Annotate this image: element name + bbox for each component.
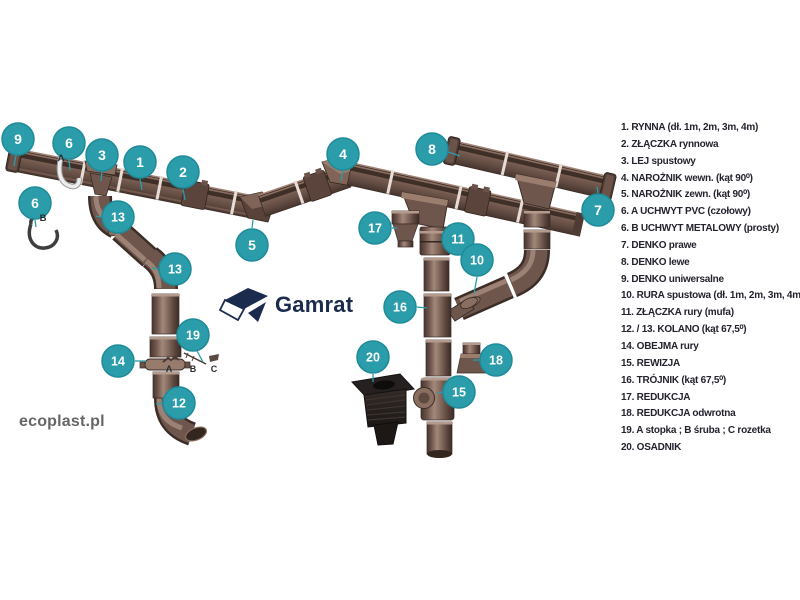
callout-badge-17: 17 (359, 212, 391, 244)
legend-item: 9. DENKO uniwersalne (621, 272, 800, 289)
callout-pointer-line (35, 220, 36, 227)
catalog-page: 96A312136B13548717111016191420121518ABC … (0, 0, 800, 600)
elbow-right (511, 250, 537, 285)
callout-number: 17 (368, 222, 382, 236)
legend-item: 17. REDUKCJA (621, 390, 800, 407)
part19-letter: A (166, 364, 173, 374)
downpipe-center (424, 258, 449, 291)
callout-number: 12 (172, 397, 186, 411)
callout-number: 9 (14, 131, 22, 147)
gamrat-logo-text: Gamrat (275, 292, 353, 318)
legend-item: 6. B UCHWYT METALOWY (prosty) (621, 221, 800, 238)
callout-badge-15: 15 (443, 376, 475, 408)
callout-badge-13: 13 (102, 201, 134, 233)
pipe-diagonal-left (116, 231, 150, 260)
legend: 1. RYNNA (dł. 1m, 2m, 3m, 4m)2. ZŁĄCZKA … (621, 120, 800, 457)
callout-badge-9: 9 (2, 123, 34, 155)
callout-number: 13 (111, 211, 125, 225)
callout-badge-3: 3 (86, 139, 118, 171)
callout-number: 18 (489, 354, 503, 368)
callout-number: 6 (65, 135, 73, 151)
callout-badge-1: 1 (124, 146, 156, 178)
callout-badge-16: 16 (384, 291, 416, 323)
legend-item: 12. / 13. KOLANO (kąt 67,5⁰) (621, 322, 800, 339)
callout-badge-13: 13 (159, 253, 191, 285)
callout-number: 4 (339, 146, 347, 162)
callout-number: 11 (451, 233, 464, 247)
callout-number: 14 (111, 355, 125, 369)
callout-badge-7: 7 (582, 194, 614, 226)
legend-item: 6. A UCHWYT PVC (czołowy) (621, 204, 800, 221)
legend-item: 16. TRÓJNIK (kąt 67,5⁰) (621, 373, 800, 390)
callout-badge-10: 10 (461, 244, 493, 276)
legend-item: 1. RYNNA (dł. 1m, 2m, 3m, 4m) (621, 120, 800, 137)
downpipe-center-lower (426, 340, 451, 376)
callout-badge-6: 6B (19, 187, 51, 224)
legend-item: 11. ZŁĄCZKA rury (mufa) (621, 305, 800, 322)
downpipe-center-bottom (427, 422, 452, 458)
downpipe-right (524, 211, 550, 249)
part19-letter: B (190, 364, 197, 374)
sediment-trap-osadnik (352, 374, 414, 445)
legend-item: 7. DENKO prawe (621, 238, 800, 255)
legend-item: 18. REDUKCJA odwrotna (621, 406, 800, 423)
callout-number: 20 (366, 351, 380, 365)
callout-number: 3 (98, 147, 106, 163)
legend-item: 19. A stopka ; B śruba ; C rozetka (621, 423, 800, 440)
callout-badge-8: 8 (416, 133, 448, 165)
legend-item: 15. REWIZJA (621, 356, 800, 373)
watermark-ecoplast: ecoplast.pl (19, 413, 105, 431)
callout-number: 5 (248, 237, 256, 253)
callout-number: 15 (452, 386, 466, 400)
callout-pointer-line (252, 220, 253, 228)
legend-item: 20. OSADNIK (621, 440, 800, 457)
callout-badge-5: 5 (236, 229, 268, 261)
callout-badge-14: 14 (102, 345, 134, 377)
callout-number: 10 (470, 254, 484, 268)
callout-number: 2 (179, 164, 187, 180)
callout-number: 8 (428, 141, 436, 157)
callout-badge-12: 12 (163, 387, 195, 419)
callout-number: 16 (393, 301, 407, 315)
legend-item: 8. DENKO lewe (621, 255, 800, 272)
legend-item: 10. RURA spustowa (dł. 1m, 2m, 3m, 4m) (621, 288, 800, 305)
callout-number: 13 (168, 263, 182, 277)
callout-number: 19 (186, 329, 200, 343)
callout-badge-18: 18 (480, 344, 512, 376)
callout-number: 7 (594, 202, 602, 218)
callout-tag-letter: B (40, 213, 47, 224)
callout-number: 1 (136, 154, 144, 170)
callout-badge-6: 6A (53, 127, 85, 164)
legend-item: 4. NAROŻNIK wewn. (kąt 90⁰) (621, 171, 800, 188)
reducer-redukcja (392, 211, 419, 247)
downpipe-left (150, 294, 181, 357)
legend-item: 2. ZŁĄCZKA rynnowa (621, 137, 800, 154)
part19-letter: C (211, 364, 218, 374)
legend-item: 3. LEJ spustowy (621, 154, 800, 171)
legend-item: 14. OBEJMA rury (621, 339, 800, 356)
callout-tag-letter: A (58, 153, 65, 164)
callout-badge-4: 4 (327, 138, 359, 170)
gamrat-logo-mark (220, 288, 268, 322)
callout-badge-2: 2 (167, 156, 199, 188)
legend-item: 5. NAROŻNIK zewn. (kąt 90⁰) (621, 187, 800, 204)
callout-number: 6 (31, 195, 39, 211)
callout-badge-19: 19 (177, 319, 209, 351)
callout-badge-20: 20 (357, 341, 389, 373)
